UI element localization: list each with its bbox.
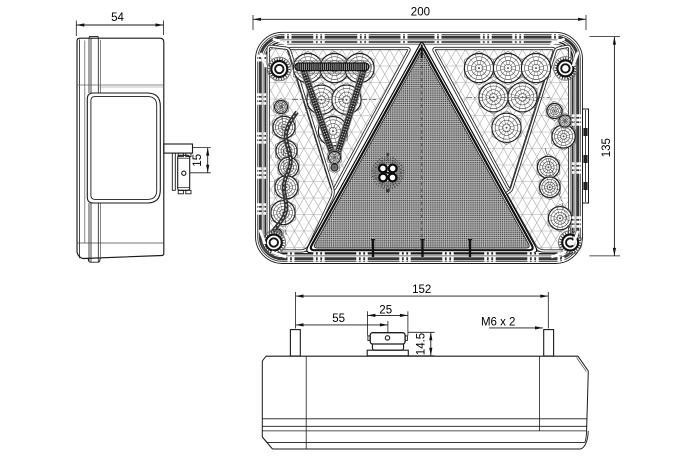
svg-text:200: 200 — [411, 7, 430, 19]
svg-text:14.5: 14.5 — [415, 333, 427, 355]
svg-text:54: 54 — [111, 12, 124, 24]
svg-text:135: 135 — [601, 138, 613, 157]
svg-text:55: 55 — [332, 313, 345, 325]
svg-text:M6 x 2: M6 x 2 — [481, 316, 516, 328]
svg-text:152: 152 — [412, 284, 431, 296]
svg-text:15: 15 — [192, 154, 204, 167]
svg-text:25: 25 — [379, 305, 392, 317]
